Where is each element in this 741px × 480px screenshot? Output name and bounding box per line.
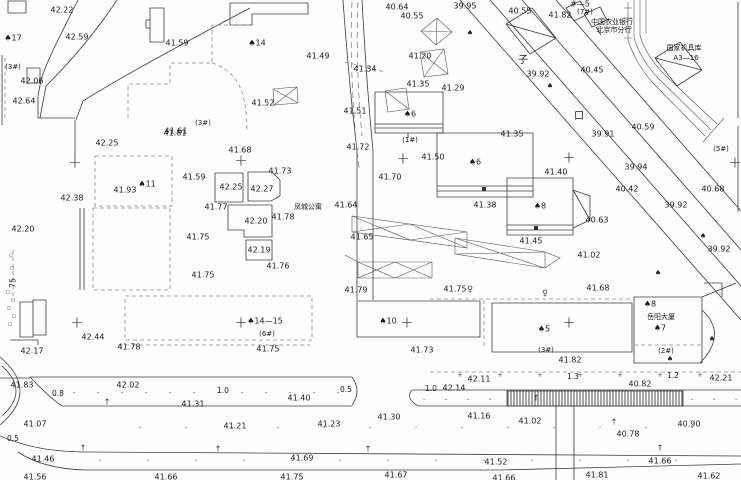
building-count-label: (7#): [577, 8, 593, 16]
building-count-label: (3#): [195, 119, 211, 127]
flow-arrow-icon: ↑: [611, 418, 618, 427]
elevation-label: 40.42: [616, 185, 639, 194]
elevation-label: 41.51: [344, 107, 367, 116]
elevation-label: 42.19: [248, 246, 271, 255]
elevation-label: 41.65: [351, 233, 374, 242]
road-texture-mark: ·: [147, 457, 150, 467]
road-width-label: 1.3: [567, 372, 579, 381]
tree-icon: ♠: [547, 82, 553, 90]
survey-cross-icon: +: [70, 313, 83, 332]
road-width-label: 0.8: [52, 389, 64, 398]
elevation-label: 41.69: [291, 454, 314, 463]
building-label: ♠11: [138, 180, 155, 189]
elevation-label: 41.66: [493, 474, 516, 480]
elevation-label: 42.02: [117, 381, 140, 390]
elevation-label: 41.73: [411, 346, 434, 355]
road-texture-mark: ·: [423, 396, 426, 406]
building-count-label: (5#): [713, 145, 729, 153]
road-texture-mark: +: [657, 371, 663, 379]
building-label: ♠6: [469, 158, 481, 167]
elevation-label: 41.73: [269, 167, 292, 176]
road-texture-mark: ·: [553, 424, 556, 434]
road-texture-mark: ·: [241, 389, 244, 399]
building-label: ♠5: [538, 325, 550, 334]
survey-map-svg: +++++++++♠♠♠♠♠♠♀♀↑↑↑↑↑↑↑○○○○○○○·········…: [0, 0, 741, 480]
elevation-label: 41.45: [520, 237, 543, 246]
road-texture-mark: ·: [193, 389, 196, 399]
elevation-label: 41.02: [578, 251, 601, 260]
survey-cross-icon: +: [234, 313, 247, 332]
elevation-label: 42.38: [61, 194, 84, 203]
road-texture-mark: ·: [243, 457, 246, 467]
road-texture-mark: ·: [99, 457, 102, 467]
survey-cross-icon: +: [728, 153, 741, 172]
manhole-icon: ○: [7, 306, 11, 312]
building-count-label: (3#): [538, 346, 554, 354]
building-count-label: (6#): [259, 330, 275, 338]
flow-arrow-icon: ↑: [533, 394, 540, 403]
buildings-layer: [2, 1, 736, 363]
survey-cross-icon: +: [400, 313, 413, 332]
survey-map-canvas: +++++++++♠♠♠♠♠♠♀♀↑↑↑↑↑↑↑○○○○○○○·········…: [0, 0, 741, 480]
road-texture-mark: ·: [445, 396, 448, 406]
railway-band: [624, 0, 738, 212]
road-texture-mark: ·: [339, 457, 342, 467]
building-label: ♠8: [644, 300, 656, 309]
road-texture-mark: ·: [121, 389, 124, 399]
elevation-label: 41.70: [379, 173, 402, 182]
road-texture-mark: ·: [369, 424, 372, 434]
survey-cross-icon: +: [562, 148, 575, 167]
road-texture-mark: ·: [337, 389, 340, 399]
road-texture-mark: ·: [97, 389, 100, 399]
labels-layer: 42.2242.59♠1741.59♠14(3#)42.0642.64(3#)4…: [4, 0, 732, 480]
elevation-label: 40.59: [632, 123, 655, 132]
elevation-label: 75: [9, 278, 18, 288]
elevation-label: 41.76: [267, 262, 290, 271]
name-label: 中国农业银行: [591, 17, 633, 26]
tree-icon: ♠: [700, 232, 706, 240]
elevation-label: 39.92: [665, 201, 688, 210]
road-texture-mark: ·: [645, 424, 648, 434]
building-label: ♠17: [4, 34, 21, 43]
elevation-label: 41.38: [474, 201, 497, 210]
road-width-label: 0.5: [340, 385, 352, 394]
manhole-icon: ○: [8, 322, 12, 328]
road-texture-mark: ·: [139, 424, 142, 434]
elevation-label: 42.21: [710, 374, 733, 383]
tree-icon: ♠: [709, 335, 715, 343]
elevation-label: 41.83: [11, 381, 34, 390]
elevation-label: 41.68: [587, 284, 610, 293]
elevation-label: 41.46: [32, 455, 55, 464]
elevation-label: 40.78: [617, 430, 640, 439]
road-texture-mark: ·: [415, 424, 418, 434]
elevation-label: 41.66: [649, 457, 672, 466]
survey-cross-icon: +: [68, 153, 81, 172]
elevation-label: 41.40: [545, 168, 568, 177]
elevation-label: 41.75: [187, 233, 210, 242]
elevation-label: 41.07: [24, 420, 47, 429]
survey-cross-icon: +: [562, 313, 575, 332]
elevation-label: 41.16: [468, 412, 491, 421]
elevation-label: 41.34: [354, 65, 377, 74]
tree-icon: ♠: [467, 29, 473, 37]
road-width-label: 0.5: [7, 434, 19, 443]
elevation-label: 40.55: [401, 12, 424, 21]
name-label: 岳阳大厦: [647, 312, 675, 321]
elevation-label: 40.82: [629, 380, 652, 389]
road-texture-mark: ·: [73, 389, 76, 399]
road-texture-mark: ·: [735, 396, 738, 406]
elevation-label: 42.20: [12, 225, 35, 234]
building-label: ♠6: [404, 110, 416, 119]
elevation-label: 42.64: [13, 97, 36, 106]
elevation-label: 41.68: [229, 146, 252, 155]
road-texture-mark: ·: [599, 424, 602, 434]
name-label: 国家机具库: [667, 43, 702, 52]
elevation-label: 41.59: [183, 173, 206, 182]
elevation-label: 41.02: [519, 417, 542, 426]
elevation-label: 41.78: [118, 343, 141, 352]
road-width-label: 1.0: [217, 386, 229, 395]
road-texture-mark: ·: [145, 389, 148, 399]
manhole-icon: ○: [12, 314, 16, 320]
elevation-label: 42.25: [220, 183, 243, 192]
name-label: 北京市分行: [597, 25, 632, 34]
road-texture-mark: +: [697, 371, 703, 379]
elevation-label: 41.81: [164, 129, 187, 138]
survey-cross-icon: +: [396, 149, 409, 168]
elevation-label: 39.94: [625, 163, 648, 172]
elevation-label: 41.77: [205, 203, 228, 212]
road-texture-mark: ·: [461, 424, 464, 434]
road-texture-mark: ·: [195, 457, 198, 467]
elevation-label: 41.35: [407, 80, 430, 89]
lamp-post-icon: ♀: [542, 289, 548, 298]
elevation-label: 41.56: [24, 473, 47, 480]
road-texture-mark: ·: [627, 457, 630, 467]
elevation-label: 42.06: [21, 77, 44, 86]
elevation-label: 41.20: [409, 52, 432, 61]
flow-arrow-icon: ↑: [104, 398, 111, 407]
elevation-label: 42.17: [21, 347, 44, 356]
elevation-label: 41.72: [347, 143, 370, 152]
road-texture-mark: ·: [277, 424, 280, 434]
manhole-icon: ○: [6, 290, 10, 296]
road-texture-mark: ·: [467, 396, 470, 406]
name-label: 凤城公寓: [294, 202, 322, 211]
road-texture-mark: ·: [691, 396, 694, 406]
manhole-icon: ○: [11, 298, 15, 304]
elevation-label: 42.22: [51, 6, 74, 15]
elevation-label: 41.79: [345, 286, 368, 295]
manhole-icon: ○: [10, 266, 14, 272]
elevation-label: 41.52: [252, 99, 275, 108]
elevation-label: 41.81: [586, 471, 609, 480]
elevation-label: 42.59: [66, 33, 89, 42]
building-label: ♠14—15: [247, 317, 283, 326]
elevation-label: 41.49: [307, 52, 330, 61]
flow-arrow-icon: ↑: [80, 444, 87, 453]
road-texture-mark: +: [457, 371, 463, 379]
elevation-label: 40.68: [702, 185, 725, 194]
flow-arrow-icon: ↑: [365, 445, 372, 454]
elevation-label: 41.29: [442, 84, 465, 93]
lamp-post-icon: ♀: [467, 285, 473, 294]
elevation-label: 41.40: [288, 394, 311, 403]
road-texture-mark: ·: [435, 457, 438, 467]
elevation-label: 41.82: [559, 356, 582, 365]
elevation-label: 41.23: [318, 420, 341, 429]
elevation-label: 40.55: [509, 7, 532, 16]
street-name-char: 子: [518, 54, 528, 66]
elevation-label: 42.25: [96, 139, 119, 148]
building-count-label: (2#): [658, 347, 674, 355]
flow-arrow-icon: ↑: [215, 445, 222, 454]
road-texture-mark: ·: [185, 424, 188, 434]
elevation-label: 41.64: [335, 201, 358, 210]
elevation-label: 41.75: [281, 473, 304, 480]
elevation-label: 40.63: [586, 216, 609, 225]
elevation-label: 41.30: [378, 413, 401, 422]
road-texture-mark: +: [537, 371, 543, 379]
elevation-label: 41.35: [501, 130, 524, 139]
tree-icon: ♠: [655, 269, 661, 277]
tree-icon: ♠: [667, 355, 673, 363]
elevation-label: 41.31: [182, 400, 205, 409]
road-texture-mark: ·: [507, 424, 510, 434]
elevation-label: 42.11: [468, 375, 491, 384]
building-label: ♠10: [379, 317, 396, 326]
road-texture-mark: ·: [675, 457, 678, 467]
elevation-label: 40.45: [581, 66, 604, 75]
elevation-label: 41.66: [155, 473, 178, 480]
elevation-label: 41.21: [224, 422, 247, 431]
road-texture-mark: ·: [713, 396, 716, 406]
road-texture-mark: +: [497, 371, 503, 379]
elevation-label: 42.27: [251, 185, 274, 194]
road-texture-mark: ·: [169, 389, 172, 399]
road-texture-mark: ·: [579, 457, 582, 467]
elevation-label: 39.92: [527, 70, 550, 79]
elevation-label: 42.20: [245, 217, 268, 226]
road-texture-mark: ·: [489, 396, 492, 406]
road-texture-mark: ·: [313, 389, 316, 399]
elevation-label: 41.82: [549, 11, 572, 20]
building-label: ♠14: [248, 39, 265, 48]
street-name-char: 口: [574, 111, 584, 122]
road-width-label: 1.2: [667, 371, 679, 380]
elevation-label: 41.52: [485, 458, 508, 467]
elevation-label: 39.91: [592, 130, 615, 139]
elevation-label: 41.75: [192, 271, 215, 280]
elevation-label: 41.78: [272, 213, 295, 222]
road-width-label: 1.0: [425, 384, 437, 393]
elevation-label: 39.92: [708, 245, 731, 254]
elevation-label: 41.93: [114, 186, 137, 195]
elevation-label: 40.90: [678, 420, 701, 429]
elevation-label: 41.62: [698, 472, 721, 480]
road-texture-mark: +: [617, 371, 623, 379]
elevation-label: 41.59: [166, 39, 189, 48]
elevation-label: 42.14: [443, 384, 466, 393]
road-texture-mark: ·: [531, 457, 534, 467]
building-label: ♠7: [654, 324, 666, 333]
elevation-label: 41.67: [385, 471, 408, 480]
road-texture-mark: ·: [265, 389, 268, 399]
road-texture-mark: ·: [387, 457, 390, 467]
elevation-label: 42.44: [82, 333, 105, 342]
elevation-label: 41.50: [422, 153, 445, 162]
elevation-label: 39.95: [454, 2, 477, 11]
elevation-label: 41.75: [257, 345, 280, 354]
elevation-label: 41.75: [444, 285, 467, 294]
manhole-icon: ○: [9, 253, 13, 259]
name-label: A3—16: [673, 54, 699, 62]
flow-arrow-icon: ↑: [657, 444, 664, 453]
building-label: ♠8: [534, 202, 546, 211]
building-count-label: (3#): [5, 63, 21, 71]
elevation-label: 40.64: [386, 3, 409, 12]
building-count-label: (1#): [402, 136, 418, 144]
